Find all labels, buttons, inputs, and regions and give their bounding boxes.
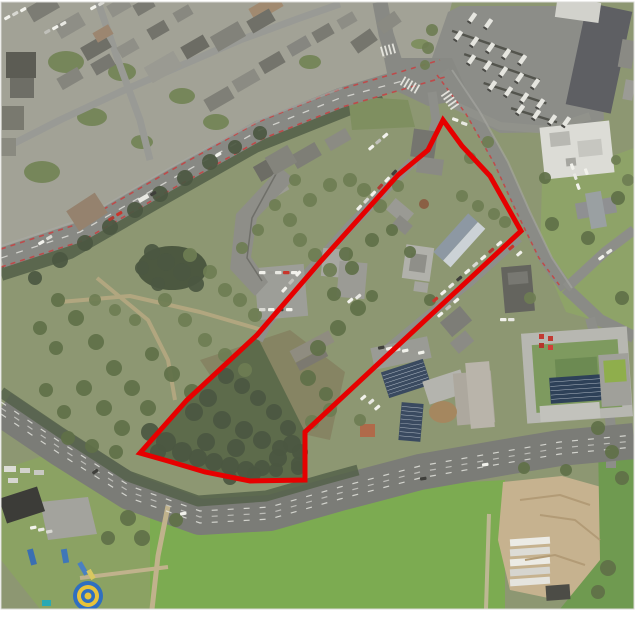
parked-car (508, 318, 515, 321)
tree (426, 24, 438, 36)
tree (591, 421, 605, 435)
building (2, 106, 24, 130)
roof-vent-red (548, 345, 553, 350)
tree (238, 363, 252, 377)
tree (293, 233, 307, 247)
tree (177, 170, 193, 186)
roof-vent-red (548, 336, 553, 341)
building (6, 52, 36, 78)
tree (615, 291, 629, 305)
tree (319, 387, 333, 401)
parked-car (500, 318, 507, 321)
tree (605, 445, 619, 459)
building (10, 78, 34, 98)
tree (289, 174, 301, 186)
tree (283, 213, 297, 227)
tree (236, 242, 248, 254)
tree (49, 341, 63, 355)
tree (109, 445, 123, 459)
tree (134, 530, 150, 546)
tree (183, 248, 197, 262)
tree (198, 333, 212, 347)
tree (129, 314, 141, 326)
tree (213, 411, 231, 429)
bright-green-roof-panel (603, 359, 626, 382)
tree (114, 420, 130, 436)
tree (327, 287, 341, 301)
tree (323, 263, 337, 277)
tree (253, 126, 267, 140)
tree (420, 60, 430, 70)
roof-vent-red (539, 343, 544, 348)
parked-car (275, 271, 282, 274)
tree (524, 292, 536, 304)
solar-array (549, 374, 603, 404)
tree (203, 265, 217, 279)
parked-car (259, 308, 266, 311)
tree (189, 449, 207, 467)
tree (300, 370, 316, 386)
tree (354, 414, 366, 426)
tree (591, 585, 605, 599)
tree (140, 400, 156, 416)
tree (303, 193, 317, 207)
tree (96, 400, 112, 416)
tree (539, 172, 551, 184)
tree (272, 440, 288, 456)
tree (280, 420, 296, 436)
solar-roof-wing (398, 402, 423, 442)
shed (4, 466, 16, 472)
parked-car (259, 271, 266, 274)
tree (253, 431, 271, 449)
tree (345, 261, 359, 275)
tree (205, 453, 223, 471)
tree (218, 283, 232, 297)
tree (178, 313, 192, 327)
tree (228, 140, 242, 154)
urban-garden (203, 114, 229, 130)
tree (330, 320, 346, 336)
parked-car (268, 308, 275, 311)
courtyard-dirt (429, 401, 457, 423)
rooftop-unit (549, 131, 570, 147)
tree (172, 442, 192, 462)
tree (350, 300, 366, 316)
carnival-spiral (85, 593, 92, 600)
tree (545, 217, 559, 231)
tree (339, 247, 353, 261)
tree (151, 277, 165, 291)
tree (106, 360, 122, 376)
tree (57, 405, 71, 419)
tree (52, 252, 68, 268)
tree (197, 433, 215, 451)
shed (8, 478, 18, 483)
tree (124, 380, 140, 396)
tree (419, 199, 429, 209)
tree (472, 200, 484, 212)
tower-roof-detail (508, 271, 529, 285)
tree (164, 366, 180, 382)
urban-garden (24, 161, 60, 183)
tree (33, 321, 47, 335)
tree (76, 380, 92, 396)
shed (34, 470, 44, 475)
tree (61, 431, 75, 445)
tree (188, 276, 204, 292)
tree (488, 208, 500, 220)
building (413, 281, 428, 293)
tree (343, 173, 357, 187)
tree (109, 304, 121, 316)
parked-car (283, 271, 290, 274)
tree (310, 340, 326, 356)
shed (20, 468, 30, 473)
tree (157, 253, 175, 271)
tree (581, 231, 595, 245)
tree (252, 224, 264, 236)
urban-garden (299, 55, 321, 69)
parked-car (267, 271, 274, 274)
tree (611, 155, 621, 165)
tree (456, 190, 468, 202)
teal-trailer (42, 600, 51, 606)
white-flat-building (539, 120, 614, 179)
tree (366, 290, 378, 302)
map-viewport (0, 0, 640, 640)
tree (120, 510, 136, 526)
tree (85, 439, 99, 453)
tree (77, 235, 93, 251)
tree (518, 462, 530, 474)
tree (234, 378, 250, 394)
tree (135, 261, 149, 275)
tree (600, 560, 616, 576)
bmx-shed (546, 584, 571, 601)
tree (51, 293, 65, 307)
tree (227, 439, 245, 457)
building (0, 138, 16, 156)
tree (199, 389, 217, 407)
tree (88, 334, 104, 350)
tree (173, 263, 191, 281)
tree (127, 202, 143, 218)
parking-lot-southwest (40, 497, 97, 540)
tree (611, 191, 625, 205)
tree (386, 224, 398, 236)
tree (269, 199, 281, 211)
tree (266, 404, 282, 420)
roof-vent-red (539, 334, 544, 339)
rooftop-unit (577, 139, 603, 157)
tree (158, 293, 172, 307)
tree (404, 246, 416, 258)
tree (269, 463, 283, 477)
tree (28, 271, 42, 285)
tree (357, 183, 371, 197)
tree (102, 219, 118, 235)
tree (365, 233, 379, 247)
tree (144, 244, 160, 260)
tree (185, 403, 203, 421)
tree (622, 174, 634, 186)
tree (101, 531, 115, 545)
parked-car (291, 271, 298, 274)
aerial-imagery (0, 0, 640, 640)
tree (323, 178, 337, 192)
tree (233, 293, 247, 307)
aerial-photo (0, 0, 636, 611)
tree (89, 294, 101, 306)
tree (615, 471, 629, 485)
tree (39, 383, 53, 397)
tree (68, 310, 84, 326)
parked-car (286, 308, 293, 311)
tree (499, 216, 511, 228)
urban-garden (169, 88, 195, 104)
tree (250, 390, 266, 406)
tree (482, 136, 494, 148)
tree (235, 421, 253, 439)
tree (422, 42, 434, 54)
playground-square (360, 424, 375, 437)
tree (560, 464, 572, 476)
tree (145, 347, 159, 361)
